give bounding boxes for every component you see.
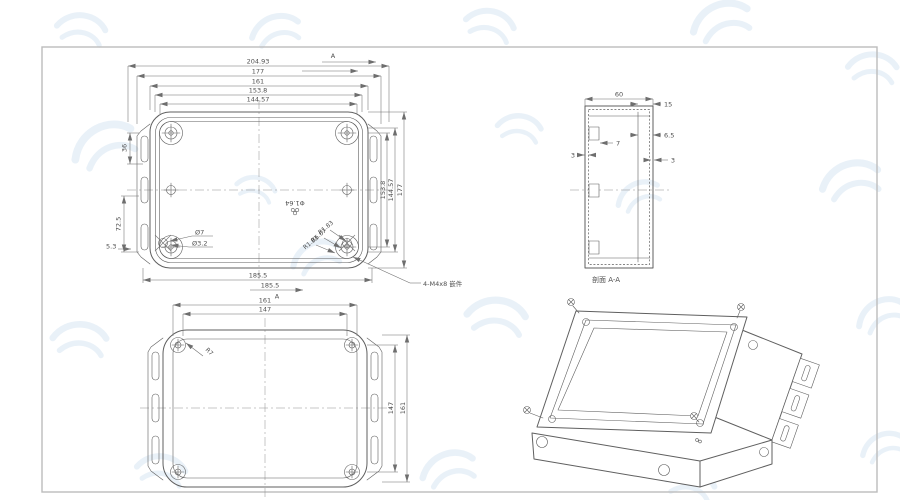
- iso-base-front: [532, 433, 700, 487]
- insert-callout: 4-M4x8 嵌件: [353, 257, 463, 288]
- dim-label: 204.93: [247, 58, 270, 66]
- iso-boss: [760, 448, 769, 457]
- flange-slot: [371, 436, 378, 464]
- dim-label: 161: [252, 78, 264, 86]
- dim-label: R7: [204, 347, 215, 358]
- iso-screw: [524, 407, 544, 419]
- iso-base-side: [700, 440, 772, 487]
- dim-label: Ø3.2: [192, 240, 207, 248]
- target-hole: [155, 235, 171, 251]
- corner-screw: [345, 338, 360, 353]
- dim-label: 147: [259, 306, 271, 314]
- radius-callouts: R1.83 R6.67 R1.83: [302, 219, 346, 253]
- dim-label: 161: [399, 402, 407, 414]
- dim-label: Ø7: [195, 229, 204, 237]
- mid-hole: [164, 183, 178, 197]
- section-letter: A: [331, 52, 336, 60]
- flange-slot: [370, 136, 377, 162]
- iso-position-mark-icon: [696, 439, 702, 443]
- section-notch: [589, 184, 599, 197]
- dim-label: 7: [616, 140, 620, 148]
- flange-slot: [141, 136, 148, 162]
- drawing-canvas: 204.93 177 161 153.8 144.57 36 72.5 5.3 …: [0, 0, 900, 500]
- dim-label: 177: [396, 184, 404, 196]
- dim-label: 147: [387, 402, 395, 414]
- drawing-sheet: 204.93 177 161 153.8 144.57 36 72.5 5.3 …: [0, 0, 900, 500]
- dim-label: 4-M4x8 嵌件: [423, 279, 463, 288]
- position-symbol-icon: [291, 208, 299, 214]
- section-notch: [589, 127, 599, 140]
- dim-label: 144.57: [387, 179, 395, 202]
- section-letter: A: [275, 293, 280, 301]
- iso-view: [524, 299, 820, 488]
- top-dimensions: 204.93 177 161 153.8 144.57: [128, 58, 389, 125]
- dim-label: 15: [664, 101, 672, 109]
- dim-label: 3: [571, 152, 575, 160]
- mid-hole: [340, 183, 354, 197]
- corner-screw: [345, 465, 360, 480]
- dim-label: 177: [252, 68, 264, 76]
- dim-label: 153.8: [249, 87, 268, 95]
- corner-screw: [171, 338, 186, 353]
- right-flange: [367, 338, 382, 480]
- dim-label: 60: [615, 91, 623, 99]
- dim-label: 72.5: [115, 217, 123, 231]
- iso-screw: [737, 304, 745, 319]
- flange-slot: [370, 224, 377, 250]
- iso-boss: [659, 465, 670, 476]
- section-dimensions: 60 15 7 6.5 3 3: [571, 91, 675, 165]
- flange-slot: [371, 352, 378, 380]
- dim-label: 36: [121, 144, 129, 152]
- dim-label: 153.8: [379, 181, 387, 200]
- flange-slot: [141, 224, 148, 250]
- corner-boss: [160, 122, 183, 145]
- corner-screw: [171, 465, 186, 480]
- iso-boss: [749, 341, 758, 350]
- dim-label: Φ1.64: [285, 199, 305, 207]
- flange-slot: [152, 352, 159, 380]
- dim-label: 161: [259, 297, 271, 305]
- dim-label: 6.5: [664, 132, 674, 140]
- section-marker-top: A: [302, 52, 376, 71]
- corner-boss: [336, 122, 359, 145]
- iso-boss: [537, 437, 548, 448]
- section-view: 60 15 7 6.5 3 3 剖面 A-A: [570, 91, 675, 285]
- top-view: 204.93 177 161 153.8 144.57 36 72.5 5.3 …: [106, 52, 463, 301]
- center-callout: Φ1.64: [285, 199, 305, 215]
- dim-label: 3: [671, 157, 675, 165]
- section-view-title: 剖面 A-A: [592, 275, 620, 284]
- dim-label: 5.3: [106, 243, 116, 251]
- bottom-dimension: 185.5: [143, 268, 372, 283]
- dim-label: 185.5: [261, 282, 280, 290]
- bottom-view-dimensions: 161 147 147 161 R7: [173, 297, 410, 483]
- section-notch: [589, 241, 599, 254]
- dim-label: 185.5: [249, 272, 268, 280]
- dim-label: 144.57: [247, 96, 270, 104]
- iso-screw: [568, 299, 580, 314]
